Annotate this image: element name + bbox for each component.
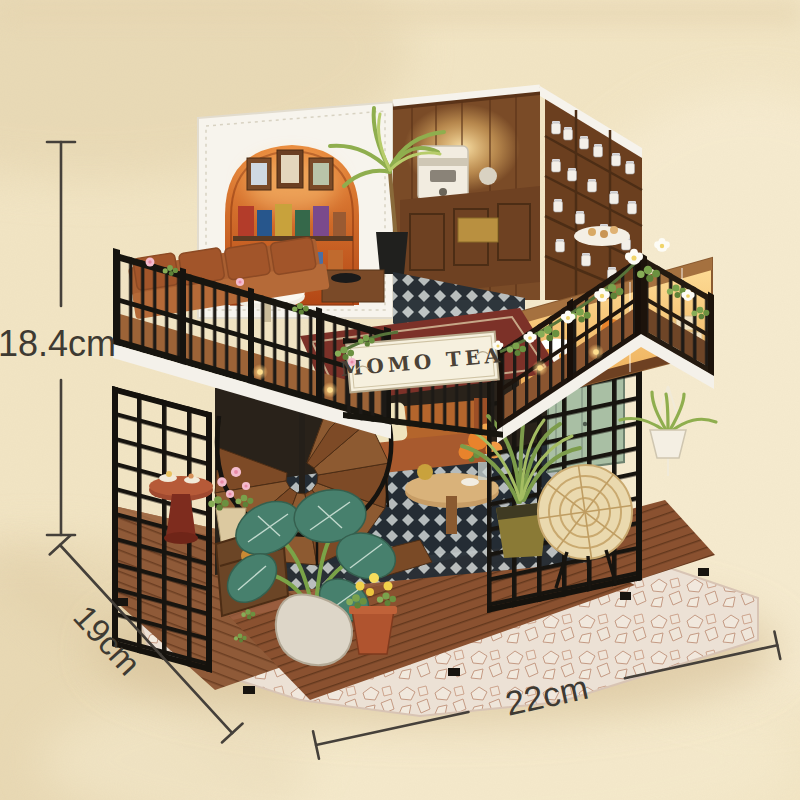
coffee-bar-wall [393, 87, 540, 300]
gold-chest [458, 218, 498, 242]
screenshot-root: MOMO TEA [0, 0, 800, 800]
product-photo-canvas: MOMO TEA [0, 0, 800, 800]
lattice-column-left [112, 386, 212, 673]
palm-pot [376, 232, 408, 274]
height-label: 18.4cm [0, 323, 116, 364]
moka-pot [479, 167, 497, 185]
gold-teapot [417, 464, 433, 480]
